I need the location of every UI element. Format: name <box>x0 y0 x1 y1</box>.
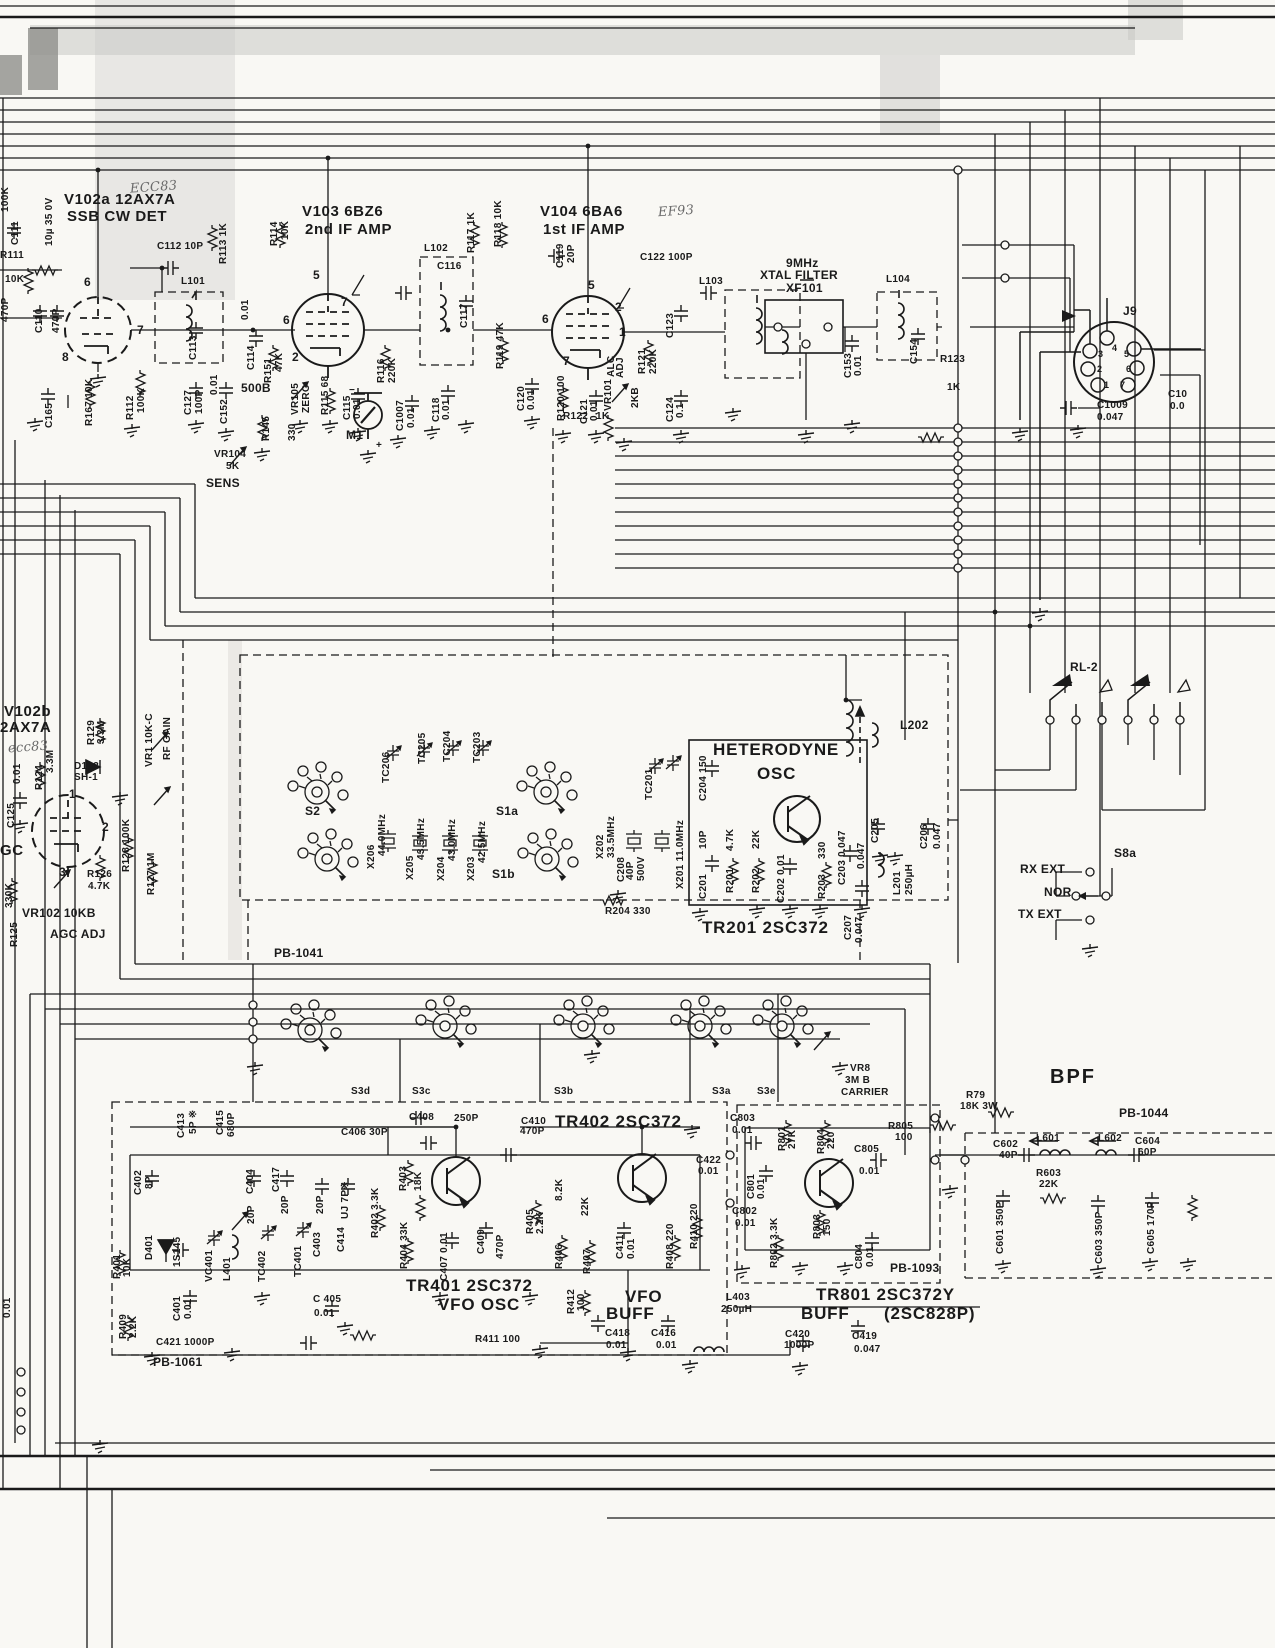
handwritten-ecc83: ECC83 <box>130 180 178 194</box>
label-pb1061: PB-1061 <box>153 1357 202 1368</box>
label-c415-value: 680P <box>226 1112 237 1137</box>
label-r79: R79 <box>966 1090 985 1101</box>
label-c413-value: 5P ※ <box>188 1110 199 1134</box>
pin-v103-7: 7 <box>341 297 348 308</box>
pin-v103-2: 2 <box>292 352 299 363</box>
label-tc402: TC402 <box>257 1250 268 1282</box>
label-c413: C413 <box>176 1113 187 1138</box>
label-l403: L403 <box>726 1292 750 1303</box>
label-rl2: RL-2 <box>1070 662 1098 673</box>
title-tr402: TR402 2SC372 <box>555 1116 682 1127</box>
label-c401-value: 0.01 <box>183 1298 194 1319</box>
label-l101: L101 <box>181 276 205 287</box>
label-c124-value: 0.1 <box>675 403 686 418</box>
pin-v102b-3: 3 <box>59 867 66 878</box>
label-r167: R167 10K <box>84 379 95 426</box>
label-r201-value: 4.7K <box>725 829 736 851</box>
label-r408: R408 220 <box>665 1223 676 1269</box>
label-c208-value: 40P <box>625 861 636 880</box>
pin-v102a-6: 6 <box>84 277 91 288</box>
pin-v102a-8: 8 <box>62 352 69 363</box>
title-vfo-osc: VFO OSC <box>438 1299 520 1310</box>
pin-v104-5: 5 <box>588 280 595 291</box>
label-c110: C110 <box>34 308 45 333</box>
label-tc205: TC205 <box>417 732 428 764</box>
label-gc: GC <box>0 845 24 856</box>
label-vr8: VR8 <box>850 1063 870 1074</box>
label-l403-value: 250µH <box>721 1304 752 1315</box>
pin-v104-1: 1 <box>619 327 626 338</box>
label-c414: C414 <box>336 1227 347 1252</box>
label-c409: C409 <box>476 1229 487 1254</box>
label-c1009-value: 0.047 <box>1097 412 1124 423</box>
label-c602-value: 40P <box>999 1150 1018 1161</box>
pin-v102b-1: 1 <box>69 789 76 800</box>
label-r113: R113 1K <box>218 223 229 264</box>
label-c602: C602 <box>993 1139 1018 1150</box>
label-c803: C803 <box>730 1113 755 1124</box>
title-v104-line1: V104 6BA6 <box>540 206 623 217</box>
pin-j9-1: 1 <box>1104 380 1109 391</box>
label-c801-value: 0.01 <box>756 1178 767 1199</box>
label-d103: D103 <box>74 761 99 772</box>
label-c408: C408 <box>409 1112 434 1123</box>
label-c420-value: 1000P <box>784 1340 814 1351</box>
label-c112: C112 10P <box>157 241 203 252</box>
label-r202: R202 <box>751 868 762 893</box>
label-tc201: TC201 <box>644 768 655 800</box>
label-l601: L601 <box>1036 1133 1060 1144</box>
label-r121: R121 <box>637 349 648 374</box>
label-vc401: VC401 <box>204 1250 215 1282</box>
label-c411: C411 <box>615 1234 626 1259</box>
label-c110-value: 470P <box>51 308 62 333</box>
label-r123-value: 1K <box>947 382 960 393</box>
label-c207: C207 <box>843 915 854 940</box>
label-c208-voltage: 500V <box>636 856 647 881</box>
label-r409-value: 2.2K <box>128 1316 139 1338</box>
label-d103-type: SH-1 <box>74 772 98 783</box>
label-c125-value: 0.01 <box>12 763 23 784</box>
label-r412-value: 100 <box>576 1293 587 1311</box>
title-v104-line2: 1st IF AMP <box>543 224 625 235</box>
title-bpf: BPF <box>1050 1072 1096 1083</box>
label-c115-value: 0.01 <box>352 398 363 419</box>
label-330k: 330K <box>4 883 15 908</box>
label-x204: X204 <box>436 856 447 881</box>
label-c403-value: 20P <box>315 1195 326 1214</box>
label-c127-value: 100P <box>194 389 205 414</box>
label-vr101: VR101 <box>603 379 614 411</box>
label-s1b: S1b <box>492 869 515 880</box>
label-c201-value: 10P <box>698 830 709 849</box>
label-r407-value: 22K <box>580 1197 591 1216</box>
label-c405: C 405 <box>313 1294 341 1305</box>
label-pb1093: PB-1093 <box>890 1263 939 1274</box>
label-l102: L102 <box>424 243 448 254</box>
label-c802: C802 <box>732 1206 757 1217</box>
label-c152: C152 <box>219 399 230 424</box>
label-r126-value: 4.7K <box>88 881 110 892</box>
label-c203: C203 0.047 <box>837 830 848 885</box>
title-tr801: TR801 2SC372Y <box>816 1289 955 1300</box>
pin-j9-3: 3 <box>1098 349 1103 360</box>
label-r145-value: 330 <box>287 423 298 441</box>
label-r203-value: 330 <box>817 841 828 859</box>
label-xtal-filter: XTAL FILTER <box>760 270 838 281</box>
label-c204: C204 150 <box>698 755 709 801</box>
label-vr104-value: 5K <box>226 461 239 472</box>
label-c206-value: 0.047 <box>932 822 943 849</box>
label-c113: C113 <box>188 335 199 360</box>
label-sens: SENS <box>206 478 240 489</box>
label-vr8-carrier: CARRIER <box>841 1087 889 1098</box>
label-c403: C403 <box>312 1232 323 1257</box>
title-tr801-alt: (2SC828P) <box>884 1308 975 1319</box>
label-c415: C415 <box>215 1110 226 1135</box>
label-r805: R805 <box>888 1121 913 1132</box>
label-c154: C154 <box>909 339 920 364</box>
label-c1009: C1009 <box>1097 400 1128 411</box>
label-r802: R802 3.3K <box>769 1217 780 1268</box>
label-c121-value: 0.01 <box>589 400 600 421</box>
label-r123: R123 <box>940 354 965 365</box>
label-vr104: VR104 <box>214 449 246 460</box>
label-c152-value: 0.01 <box>209 374 220 395</box>
label-edge-001: 0.01 <box>2 1297 13 1318</box>
label-l201-value: 250µH <box>904 864 915 895</box>
label-r120: R120 100 <box>556 375 567 421</box>
label-c605: C605 170P <box>1146 1201 1157 1254</box>
title-tr801-buff: BUFF <box>801 1308 850 1319</box>
label-c420: C420 <box>785 1329 810 1340</box>
label-r805-value: 100 <box>895 1132 913 1143</box>
label-c127: C127 <box>183 390 194 415</box>
label-1s145: 1S145 <box>172 1237 183 1267</box>
label-r129-value: 3.3M <box>96 721 107 744</box>
label-s1a: S1a <box>496 806 518 817</box>
label-c414-value: UJ 7P※ <box>340 1181 351 1219</box>
label-l602: L602 <box>1098 1133 1122 1144</box>
label-r407: R407 <box>582 1249 593 1274</box>
title-v102a-line1: V102a 12AX7A <box>64 194 175 205</box>
label-100k-partial: 100K <box>0 187 11 212</box>
label-c803-value: 0.01 <box>732 1125 753 1136</box>
label-c419-value: 0.047 <box>854 1344 881 1355</box>
label-c409-value: 470P <box>495 1234 506 1259</box>
label-c10x-partial: C10 <box>1168 389 1187 400</box>
label-x203-freq: 42.5MHz <box>477 821 488 863</box>
label-tc203: TC203 <box>472 731 483 763</box>
label-r128: R128 100K <box>121 819 132 872</box>
label-c116: C116 <box>437 261 462 272</box>
label-c406: C406 30P <box>341 1127 388 1138</box>
title-vfo: VFO <box>625 1291 662 1302</box>
label-c111-cap: 10µ 35 0V <box>44 198 55 247</box>
handwritten-ef93: EF93 <box>658 205 695 219</box>
label-c117: C117 <box>459 303 470 328</box>
label-c805-value: 0.01 <box>859 1166 880 1177</box>
label-470p-partial: 470P <box>0 297 11 322</box>
label-c402-value: 8P <box>144 1176 155 1189</box>
label-c125: C125 <box>6 803 17 828</box>
title-tr201: TR201 2SC372 <box>702 922 829 933</box>
label-r151-value: 47K <box>274 353 285 372</box>
label-c153-value: 0.01 <box>853 355 864 376</box>
label-r410: R410 220 <box>689 1203 700 1249</box>
label-l201: L201 <box>892 871 903 895</box>
label-c421: C421 1000P <box>156 1337 215 1348</box>
label-r403-value: 18K <box>413 1172 424 1191</box>
label-c120-value: 0.01 <box>526 389 537 410</box>
label-s3b: S3b <box>554 1086 573 1097</box>
label-r124-value: 3.3M <box>45 750 56 773</box>
label-r202-value: 22K <box>751 830 762 849</box>
label-m1: M1 <box>346 430 363 441</box>
label-r402: R402 3.3K <box>370 1187 381 1238</box>
label-r127: R127 1M <box>146 852 157 895</box>
label-c207-value: 0.047 <box>854 916 865 943</box>
label-s3d: S3d <box>351 1086 370 1097</box>
label-x206: X206 <box>366 844 377 869</box>
label-x202-freq: 33.5MHz <box>606 816 617 858</box>
label-c404-value: 20P <box>246 1205 257 1224</box>
label-r79-value: 18K 3W <box>960 1101 998 1112</box>
label-vr105: VR105 <box>290 383 301 415</box>
label-rx-ext: RX EXT <box>1020 864 1065 875</box>
label-c604: C604 <box>1135 1136 1160 1147</box>
label-c165: C165 <box>44 403 55 428</box>
label-adj: ADJ <box>615 357 626 378</box>
pin-v104-7: 7 <box>563 356 570 367</box>
pin-j9-2: 2 <box>1097 364 1102 375</box>
label-c405-value: 0.01 <box>314 1308 335 1319</box>
label-tx-ext: TX EXT <box>1018 909 1062 920</box>
pin-j9-6: 6 <box>1126 364 1131 375</box>
label-x204-freq: 43.0MHz <box>447 819 458 861</box>
label-r603: R603 <box>1036 1168 1061 1179</box>
label-c123: C123 <box>665 313 676 338</box>
label-x203: X203 <box>466 856 477 881</box>
label-nor: NOR <box>1044 887 1072 898</box>
pin-v104-6: 6 <box>542 314 549 325</box>
pin-j9-5: 5 <box>1124 349 1129 360</box>
title-v102a-line2: SSB CW DET <box>67 211 167 222</box>
label-r145: R145 <box>261 416 272 441</box>
label-c205: C205 <box>870 818 881 843</box>
label-c1007-value: 0.01 <box>406 407 417 428</box>
label-pb1044: PB-1044 <box>1119 1108 1168 1119</box>
pin-v103-6: 6 <box>283 315 290 326</box>
label-c601: C601 350P <box>995 1201 1006 1254</box>
label-r124: R124 <box>34 765 45 790</box>
label-r114: R114 <box>269 221 280 246</box>
label-c114: C114 <box>246 345 257 370</box>
label-c10x-value-partial: 0.0 <box>1170 401 1185 412</box>
label-c119: C119 <box>555 243 566 268</box>
label-r121-value: 220K <box>648 349 659 374</box>
label-vr102: VR102 10KB <box>22 908 96 919</box>
label-vr1: VR1 10K-C <box>144 713 155 767</box>
label-c418-value: 0.01 <box>606 1340 627 1351</box>
label-r401-value: 10K <box>122 1258 133 1277</box>
label-c1007: C1007 <box>395 400 406 431</box>
title-tr401: TR401 2SC372 <box>406 1280 533 1291</box>
label-c410-value: 470P <box>520 1126 545 1137</box>
label-r804-value: 220 <box>826 1131 837 1149</box>
label-c418: C418 <box>605 1328 630 1339</box>
label-s2: S2 <box>305 806 320 817</box>
label-c402: C402 <box>133 1170 144 1195</box>
label-c114-value: 0.01 <box>240 299 251 320</box>
label-r112-value: 100K <box>136 388 147 413</box>
label-r404: R404 33K <box>399 1222 410 1269</box>
label-agc-adj: AGC ADJ <box>50 929 106 940</box>
label-r603-value: 22K <box>1039 1179 1058 1190</box>
label-d401: D401 <box>144 1235 155 1260</box>
label-s3c: S3c <box>412 1086 431 1097</box>
label-x202: X202 <box>595 834 606 859</box>
label-l104: L104 <box>886 274 910 285</box>
label-tc204: TC204 <box>442 730 453 762</box>
title-v103-line1: V103 6BZ6 <box>302 206 383 217</box>
label-c603: C603 350P <box>1094 1211 1105 1264</box>
label-vr8-value: 3M B <box>845 1075 870 1086</box>
label-c202: C202 0.01 <box>776 854 787 903</box>
label-l401: L401 <box>222 1257 233 1281</box>
label-r116-value: 220K <box>387 358 398 383</box>
pin-v102b-2: 2 <box>102 822 109 833</box>
label-r116: R116 <box>376 358 387 383</box>
label-r406-value: 8.2K <box>554 1179 565 1201</box>
label-l202: L202 <box>900 720 929 731</box>
pin-v102a-7: 7 <box>137 325 144 336</box>
label-r403: R403 <box>398 1166 409 1191</box>
label-r125: R125 <box>9 922 20 947</box>
label-c206: C206 <box>919 824 930 849</box>
title-v102b-line1: V102b <box>4 706 51 717</box>
label-r114-value: 10K <box>280 221 291 240</box>
label-c119-value: 20P <box>566 244 577 263</box>
label-vr105-zero: ZERO <box>301 384 312 413</box>
title-het-osc: OSC <box>757 768 796 779</box>
label-meter-plus: + <box>376 440 382 451</box>
label-tc206: TC206 <box>381 751 392 783</box>
label-r406: R406 <box>554 1244 565 1269</box>
title-heterodyne: HETERODYNE <box>713 744 839 755</box>
label-pb1041: PB-1041 <box>274 948 323 959</box>
label-c804-value: 0.01 <box>865 1246 876 1267</box>
label-r803-value: 150 <box>822 1218 833 1236</box>
label-r203: R203 <box>817 874 828 899</box>
label-r115: R115 68 <box>320 376 331 415</box>
label-c604-value: 60P <box>1138 1147 1157 1158</box>
label-c422: C422 <box>696 1155 721 1166</box>
label-c416-value: 0.01 <box>656 1340 677 1351</box>
label-r112: R112 <box>125 395 136 420</box>
label-vr101-value: 2KB <box>630 387 641 408</box>
label-c805: C805 <box>854 1144 879 1155</box>
label-c201: C201 <box>698 874 709 899</box>
label-r126: R126 <box>87 869 112 880</box>
label-c408-value: 250P <box>454 1113 479 1124</box>
schematic-page: V102a 12AX7A SSB CW DET ECC83 V103 6BZ6 … <box>0 0 1275 1648</box>
label-r204: R204 330 <box>605 906 651 917</box>
pin-j9-4: 4 <box>1112 343 1117 354</box>
label-s3e: S3e <box>757 1086 776 1097</box>
label-s8a: S8a <box>1114 848 1136 859</box>
label-c407: C407 0.01 <box>439 1232 450 1281</box>
label-c411-value: 0.01 <box>626 1238 637 1259</box>
title-vfo-buff: BUFF <box>606 1308 655 1319</box>
label-c419: C419 <box>852 1331 877 1342</box>
label-rf-gain: RF GAIN <box>162 717 173 760</box>
label-c417: C417 <box>271 1167 282 1192</box>
label-c416: C416 <box>651 1328 676 1339</box>
label-0047: 0.047 <box>856 842 867 869</box>
label-r111-value: 10K <box>5 274 24 285</box>
label-c118-value: 0.01 <box>441 399 452 420</box>
label-x201: X201 11.0MHz <box>675 820 686 889</box>
title-v102b-line2: 2AX7A <box>0 722 51 733</box>
label-r411: R411 100 <box>475 1334 520 1345</box>
label-x206-freq: 44.0MHz <box>377 814 388 856</box>
label-xf101: XF101 <box>786 283 823 294</box>
label-r111: R111 <box>0 250 24 261</box>
label-r151: R151 <box>263 358 274 383</box>
pin-v104-2: 2 <box>615 302 622 313</box>
title-v103-line2: 2nd IF AMP <box>305 224 392 235</box>
label-c417-value: 20P <box>280 1195 291 1214</box>
label-r117: R117 1K <box>466 212 477 253</box>
label-c422-value: 0.01 <box>698 1166 719 1177</box>
label-r118: R118 10K <box>493 200 504 247</box>
label-c401: C401 <box>172 1296 183 1321</box>
label-j9: J9 <box>1123 306 1137 317</box>
pin-j9-7: 7 <box>1120 380 1125 391</box>
label-c122: C122 100P <box>640 252 693 263</box>
label-c802-value: 0.01 <box>735 1218 756 1229</box>
label-x205: X205 <box>405 855 416 880</box>
label-tc401: TC401 <box>293 1245 304 1277</box>
label-s3a: S3a <box>712 1086 731 1097</box>
label-r801-value: 27K <box>787 1130 798 1149</box>
pin-v103-5: 5 <box>313 270 320 281</box>
label-r201: R201 <box>725 868 736 893</box>
label-c111: C111 <box>10 221 21 245</box>
label-x205-freq: 43.5MHz <box>416 818 427 860</box>
label-l103: L103 <box>699 276 723 287</box>
handwritten-ecc83-b: ecc83 <box>8 741 49 755</box>
label-500b: 500B <box>241 383 271 394</box>
label-r119: R119 47K <box>495 322 506 369</box>
label-c804: C804 <box>854 1244 865 1269</box>
label-r405-value: 2.2K <box>535 1212 546 1234</box>
label-c404: C404 <box>245 1169 256 1194</box>
